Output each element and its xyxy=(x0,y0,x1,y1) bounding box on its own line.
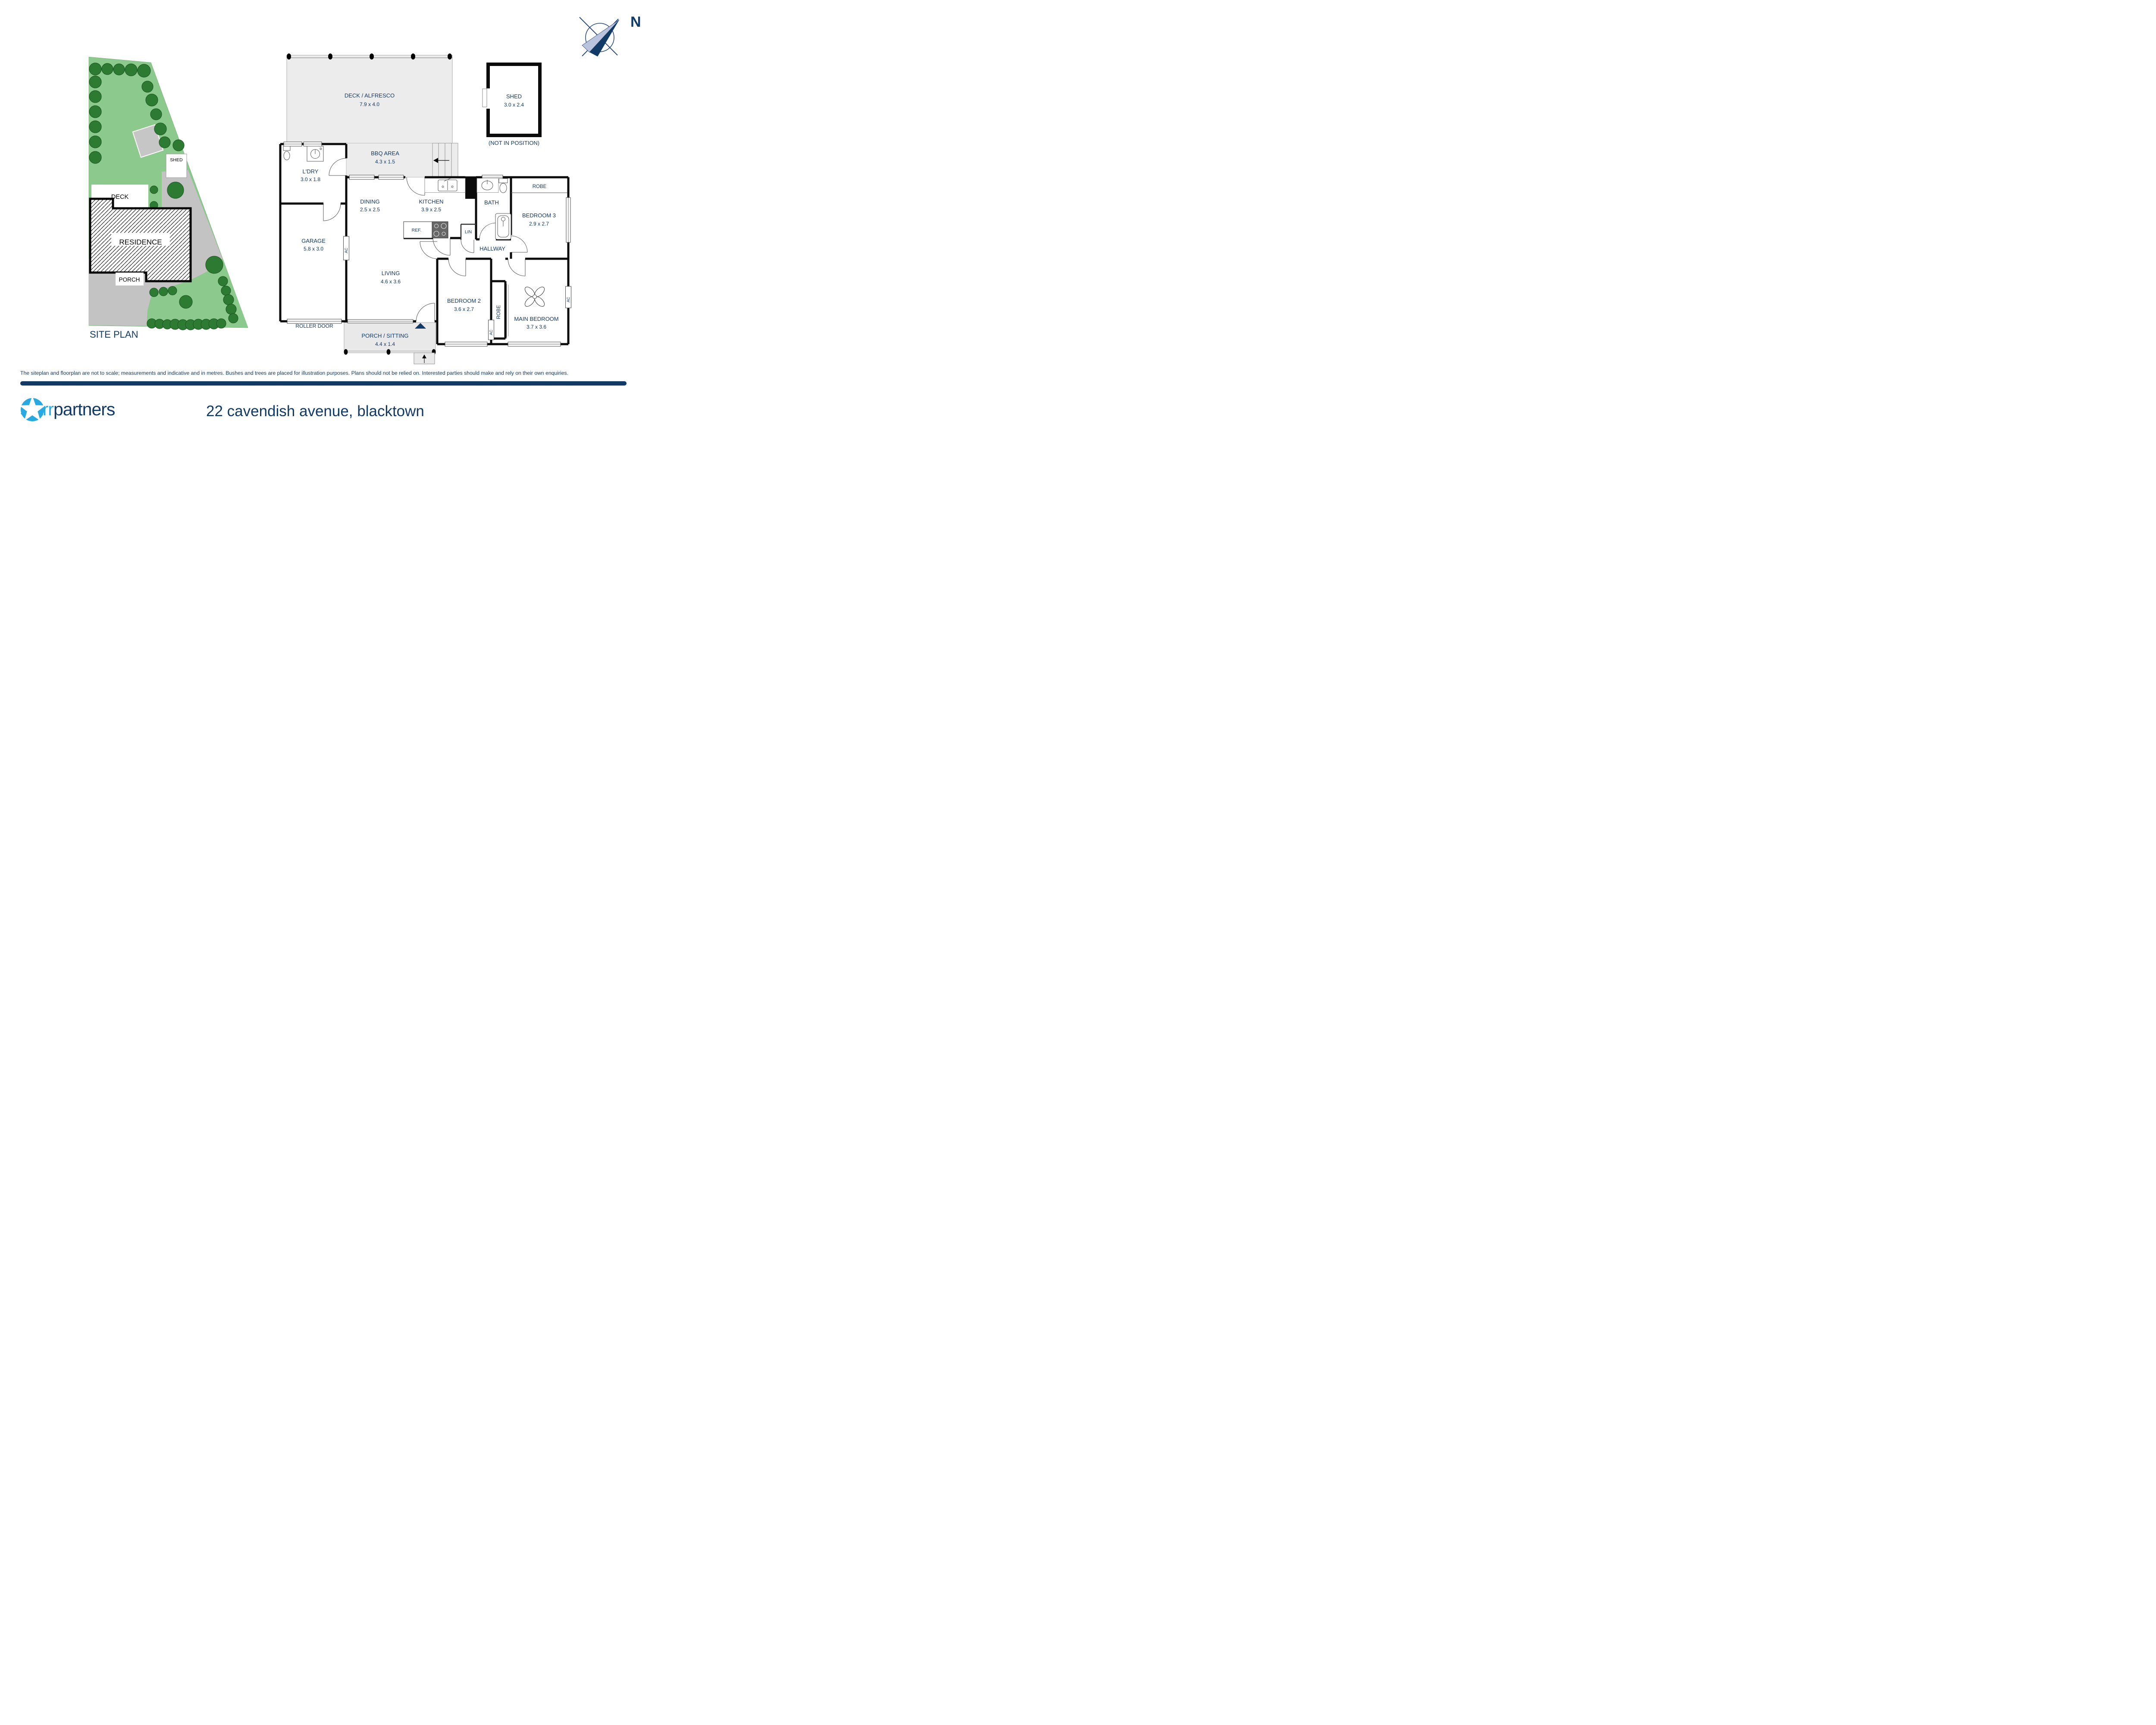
ref-label: REF. xyxy=(412,228,422,233)
property-address: 22 cavendish avenue, blacktown xyxy=(206,403,424,420)
floorplan: DECK / ALFRESCO 7.9 x 4.0 BBQ AREA 4.3 x… xyxy=(280,53,571,364)
kitchen-dims: 3.9 x 2.5 xyxy=(421,207,441,213)
bath-label: BATH xyxy=(484,199,499,206)
site-porch-label: PORCH xyxy=(119,276,140,283)
site-residence-label: RESIDENCE xyxy=(119,238,162,246)
ac-label-garage: AC xyxy=(344,248,348,253)
divider-bar xyxy=(20,381,627,386)
bedroom3-label: BEDROOM 3 xyxy=(522,212,556,219)
porch-sitting-label: PORCH / SITTING xyxy=(361,332,408,339)
washing-machine-icon xyxy=(307,146,323,161)
ldry-label: L'DRY xyxy=(303,168,319,175)
plan-canvas: SHED DECK RESIDENCE PORCH SITE PLAN N xyxy=(0,0,647,431)
garage-label: GARAGE xyxy=(301,238,326,244)
bedroom3-dims: 2.9 x 2.7 xyxy=(529,221,549,227)
garage-dims: 5.8 x 3.0 xyxy=(304,246,323,252)
bedroom2-label: BEDROOM 2 xyxy=(447,298,481,304)
site-plan: SHED DECK RESIDENCE PORCH SITE PLAN xyxy=(89,57,248,340)
ldry-dims: 3.0 x 1.8 xyxy=(301,176,320,182)
shed-dims: 3.0 x 2.4 xyxy=(504,102,524,108)
shed-floorplan: SHED 3.0 x 2.4 (NOT IN POSITION) xyxy=(483,63,542,146)
stairs xyxy=(432,143,458,177)
robe-column-label: ROBE xyxy=(496,305,501,319)
site-plan-title: SITE PLAN xyxy=(90,329,138,340)
roller-door-label: ROLLER DOOR xyxy=(295,323,333,329)
bbq-label: BBQ AREA xyxy=(371,150,399,157)
dining-dims: 2.5 x 2.5 xyxy=(360,207,380,213)
starr-partners-star-icon xyxy=(20,398,44,422)
brand-logo: starrpartners xyxy=(20,398,115,421)
porch-sitting-dims: 4.4 x 1.4 xyxy=(375,341,395,347)
hallway-label: HALLWAY xyxy=(479,245,505,252)
deck-alfresco-label: DECK / ALFRESCO xyxy=(345,92,395,99)
deck-alfresco-area xyxy=(287,55,452,143)
main-bedroom-label: MAIN BEDROOM xyxy=(514,316,558,322)
bedroom2-dims: 3.6 x 2.7 xyxy=(454,306,474,312)
site-shed-label: SHED xyxy=(170,157,183,163)
lin-label: LIN xyxy=(465,229,472,235)
wall-block xyxy=(465,176,476,199)
bbq-dims: 4.3 x 1.5 xyxy=(375,159,395,165)
ac-label-bed2: AC xyxy=(489,329,493,335)
page: SHED DECK RESIDENCE PORCH SITE PLAN N xyxy=(0,0,647,431)
deck-alfresco-dims: 7.9 x 4.0 xyxy=(360,101,379,107)
compass-n-label: N xyxy=(630,14,641,30)
ac-label-main: AC xyxy=(566,297,570,302)
dining-label: DINING xyxy=(360,198,380,205)
bathtub-icon xyxy=(495,213,511,239)
sink-icon xyxy=(438,178,457,191)
main-bedroom-dims: 3.7 x 3.6 xyxy=(526,324,546,330)
compass-icon: N xyxy=(580,14,641,56)
shed-label: SHED xyxy=(506,93,522,100)
living-dims: 4.6 x 3.6 xyxy=(381,279,401,285)
living-label: LIVING xyxy=(382,270,400,276)
brand-partners: partners xyxy=(53,399,115,419)
kitchen-label: KITCHEN xyxy=(419,198,443,205)
disclaimer-text: The siteplan and floorplan are not to sc… xyxy=(20,370,627,376)
site-residence: RESIDENCE xyxy=(90,199,191,281)
toilet-icon xyxy=(283,146,290,160)
stove-icon xyxy=(432,222,448,238)
shed-note: (NOT IN POSITION) xyxy=(489,140,539,146)
bath-toilet-icon xyxy=(499,179,508,193)
robe-bed3-label: ROBE xyxy=(533,184,547,189)
